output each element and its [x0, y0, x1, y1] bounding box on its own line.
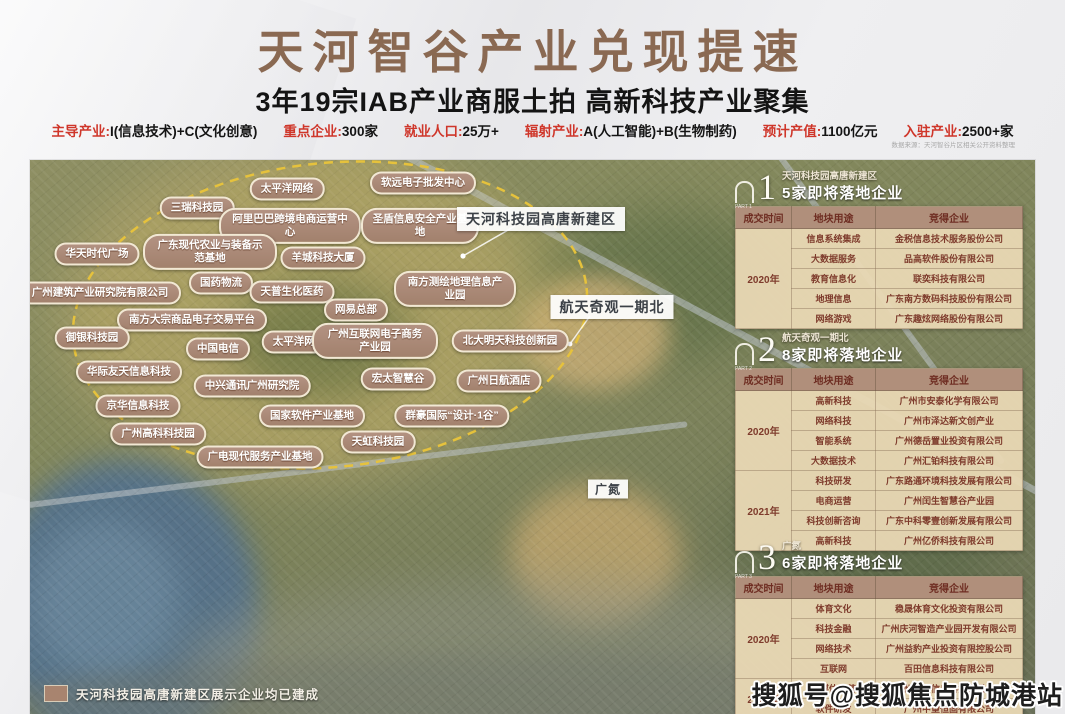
winning-company: 金税信息技术服务股份公司: [876, 229, 1023, 249]
stat-value: I(信息技术)+C(文化创意): [110, 124, 257, 139]
winning-company: 稳晟体育文化投资有限公司: [876, 599, 1023, 619]
winning-company: 广州市安泰化学有限公司: [876, 391, 1023, 411]
deal-time: 2020年: [736, 391, 792, 471]
map-legend: 天河科技园高唐新建区展示企业均已建成: [44, 684, 319, 703]
table-row: 2020年体育文化稳晟体育文化投资有限公司: [736, 599, 1023, 619]
deal-time: 2020年: [736, 599, 792, 679]
table-row: 2020年信息系统集成金税信息技术服务股份公司: [736, 229, 1023, 249]
land-use: 高新科技: [792, 391, 876, 411]
panel-2: PART 22航天奇观一期北8家即将落地企业成交时间地块用途竞得企业2020年高…: [735, 330, 1022, 551]
stat-label: 重点企业:: [283, 124, 342, 139]
map-bubble: 广州互联网电子商务产业园: [312, 323, 438, 359]
part-tag: PART 3: [735, 574, 752, 580]
map-bubble: 京华信息科技: [96, 394, 181, 417]
stat-item: 就业人口:25万+: [404, 120, 499, 140]
stat-value: 300家: [342, 124, 378, 139]
land-use: 信息系统集成: [792, 229, 876, 249]
winning-company: 广州闰生智慧谷产业园: [876, 491, 1023, 511]
area-label: 天河科技园高唐新建区: [457, 207, 625, 231]
panel-title: 6家即将落地企业: [782, 552, 903, 573]
map-bubble: 羊城科技大厦: [281, 246, 366, 269]
stat-value: 1100亿元: [821, 124, 877, 139]
map-bubble: 国药物流: [189, 271, 253, 294]
land-use: 网络游戏: [792, 309, 876, 329]
panel-title: 5家即将落地企业: [782, 182, 903, 203]
winning-company: 广州益豹产业投资有限控股公司: [876, 639, 1023, 659]
poster: 天河智谷产业兑现提速 3年19宗IAB产业商服土拍 高新科技产业聚集 主导产业:…: [0, 0, 1065, 714]
map-bubble: 天普生化医药: [250, 280, 335, 303]
map-bubble: 广电现代服务产业基地: [197, 445, 324, 468]
land-use: 电商运营: [792, 491, 876, 511]
column-header: 地块用途: [792, 207, 876, 229]
winning-company: 品高软件股份有限公司: [876, 249, 1023, 269]
stat-label: 预计产值:: [763, 124, 822, 139]
stat-label: 入驻产业:: [904, 124, 963, 139]
table-row: 2021年科技研发广东路通环境科技发展有限公司: [736, 471, 1023, 491]
land-use: 体育文化: [792, 599, 876, 619]
winning-company: 广东趣炫网络股份有限公司: [876, 309, 1023, 329]
map-bubble: 中兴通讯广州研究院: [194, 374, 311, 397]
panel-header: PART 22航天奇观一期北8家即将落地企业: [735, 330, 1022, 365]
stats-row: 主导产业:I(信息技术)+C(文化创意)重点企业:300家就业人口:25万+辐射…: [0, 120, 1065, 140]
land-use: 教育信息化: [792, 269, 876, 289]
part-tag: PART 1: [735, 204, 752, 210]
land-use: 大数据服务: [792, 249, 876, 269]
panel-subtitle: 广氮: [782, 538, 903, 552]
column-header: 地块用途: [792, 577, 876, 599]
winning-company: 广东南方数码科技股份有限公司: [876, 289, 1023, 309]
stat-label: 就业人口:: [404, 124, 463, 139]
stat-label: 主导产业:: [52, 124, 111, 139]
stat-label: 辐射产业:: [525, 124, 584, 139]
land-use: 智能系统: [792, 431, 876, 451]
table-row: 2020年高新科技广州市安泰化学有限公司: [736, 391, 1023, 411]
land-use: 网络科技: [792, 411, 876, 431]
area-label: 广氮: [588, 480, 628, 499]
land-use: 科技研发: [792, 471, 876, 491]
map-bubble: 宏太智慧谷: [361, 367, 436, 390]
land-use: 科技创新咨询: [792, 511, 876, 531]
winning-company: 广东路通环境科技发展有限公司: [876, 471, 1023, 491]
map-bubble: 御银科技园: [55, 326, 130, 349]
stat-item: 入驻产业:2500+家: [904, 120, 1014, 140]
map-bubble: 网易总部: [324, 298, 388, 321]
stat-value: 25万+: [462, 124, 498, 139]
gate-icon: PART 3: [735, 551, 754, 573]
deals-table: 成交时间地块用途竞得企业2020年高新科技广州市安泰化学有限公司网络科技广州市泽…: [735, 368, 1023, 551]
legend-text: 天河科技园高唐新建区展示企业均已建成: [76, 684, 319, 703]
map-bubble: 广州日航酒店: [457, 369, 542, 392]
legend-swatch-icon: [44, 685, 68, 702]
watermark: 搜狐号@搜狐焦点防城港站: [752, 676, 1063, 712]
source-note: 数据来源：天河智谷片区相关公开资料整理: [892, 139, 1016, 149]
map-bubble: 软远电子批发中心: [370, 171, 476, 194]
part-number: 2: [758, 335, 776, 365]
part-number: 1: [758, 173, 776, 203]
column-header: 竞得企业: [876, 369, 1023, 391]
column-header: 竞得企业: [876, 207, 1023, 229]
panel-header: PART 11天河科技园高唐新建区5家即将落地企业: [735, 168, 1022, 203]
part-number: 3: [758, 543, 776, 573]
map-bubble: 南方测绘地理信息产业园: [394, 271, 516, 307]
panel-subtitle: 天河科技园高唐新建区: [782, 168, 903, 182]
gate-icon: PART 1: [735, 181, 754, 203]
part-tag: PART 2: [735, 366, 752, 372]
aerial-map: 天河科技园高唐新建区航天奇观一期北广氮 太平洋网络三瑞科技园阿里巴巴跨境电商运营…: [30, 160, 1035, 714]
map-bubble: 广州建筑产业研究院有限公司: [30, 281, 181, 304]
winning-company: 广州庆河智造产业园开发有限公司: [876, 619, 1023, 639]
panel-title: 8家即将落地企业: [782, 344, 903, 365]
map-bubble: 广东现代农业与装备示范基地: [143, 234, 277, 270]
column-header: 地块用途: [792, 369, 876, 391]
map-bubble: 北大明天科技创新园: [452, 329, 569, 352]
stat-value: A(人工智能)+B(生物制药): [583, 124, 736, 139]
stat-item: 重点企业:300家: [283, 120, 378, 140]
map-bubble: 华天时代广场: [55, 242, 140, 265]
stat-item: 辐射产业:A(人工智能)+B(生物制药): [525, 120, 737, 140]
winning-company: 广州市泽达新文创产业: [876, 411, 1023, 431]
land-use: 大数据技术: [792, 451, 876, 471]
winning-company: 广东中科零壹创新发展有限公司: [876, 511, 1023, 531]
map-bubble: 太平洋网络: [250, 177, 325, 200]
panel-header: PART 33广氮6家即将落地企业: [735, 538, 1022, 573]
column-header: 竞得企业: [876, 577, 1023, 599]
winning-company: 联奕科技有限公司: [876, 269, 1023, 289]
map-bubble: 华际友天信息科技: [76, 360, 182, 383]
map-bubble: 南方大宗商品电子交易平台: [117, 308, 267, 331]
deals-table: 成交时间地块用途竞得企业2020年信息系统集成金税信息技术服务股份公司大数据服务…: [735, 206, 1023, 329]
land-use: 地理信息: [792, 289, 876, 309]
map-bubble: 群豪国际“设计·1谷”: [394, 404, 509, 427]
page-subtitle: 3年19宗IAB产业商服土拍 高新科技产业聚集: [0, 80, 1065, 119]
map-bubble: 国家软件产业基地: [259, 404, 365, 427]
page-title: 天河智谷产业兑现提速: [0, 16, 1065, 82]
stat-item: 主导产业:I(信息技术)+C(文化创意): [52, 120, 258, 140]
area-label: 航天奇观一期北: [551, 295, 674, 319]
land-use: 科技金融: [792, 619, 876, 639]
stat-value: 2500+家: [962, 124, 1013, 139]
map-bubble: 天虹科技园: [341, 430, 416, 453]
gate-icon: PART 2: [735, 343, 754, 365]
panel-1: PART 11天河科技园高唐新建区5家即将落地企业成交时间地块用途竞得企业202…: [735, 168, 1022, 329]
map-bubble: 广州高科科技园: [110, 422, 206, 445]
land-use: 网络技术: [792, 639, 876, 659]
winning-company: 广州汇铂科技有限公司: [876, 451, 1023, 471]
map-bubble: 中国电信: [186, 337, 250, 360]
stat-item: 预计产值:1100亿元: [763, 120, 878, 140]
panel-subtitle: 航天奇观一期北: [782, 330, 903, 344]
winning-company: 广州德岳置业投资有限公司: [876, 431, 1023, 451]
deal-time: 2020年: [736, 229, 792, 329]
